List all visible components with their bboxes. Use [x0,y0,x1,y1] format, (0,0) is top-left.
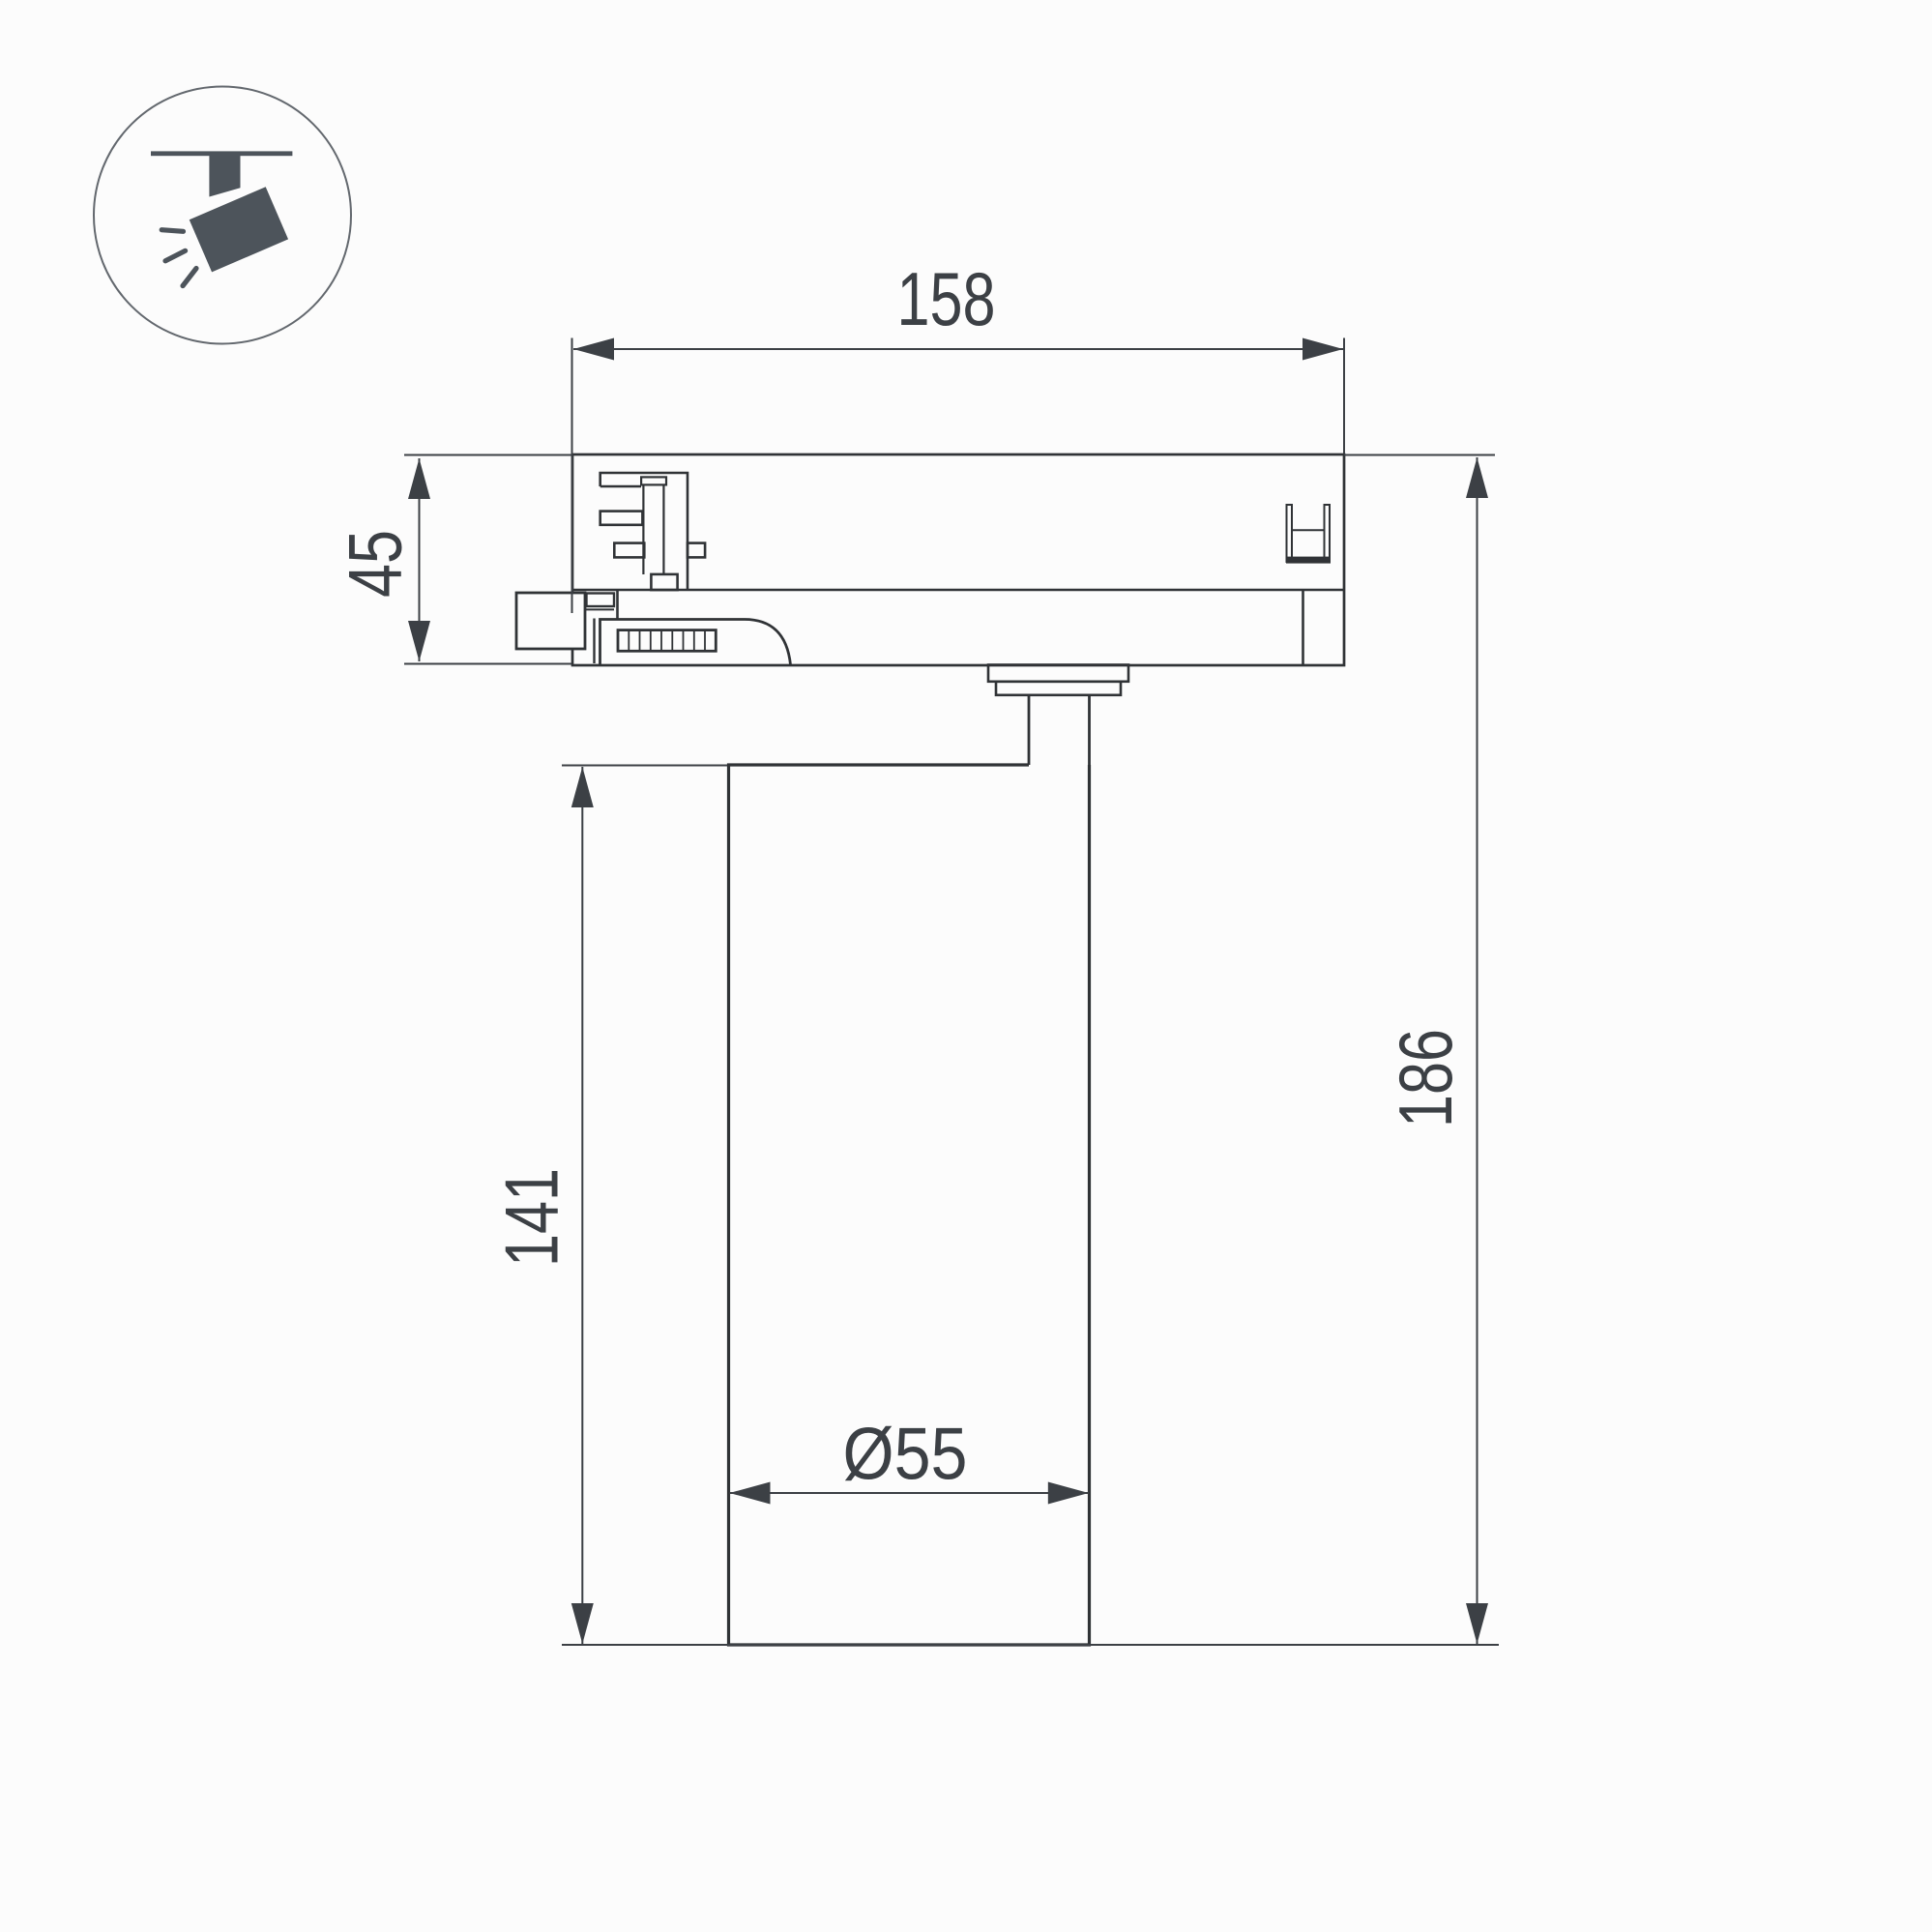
svg-text:158: 158 [897,256,996,341]
svg-text:141: 141 [489,1168,574,1267]
svg-text:Ø55: Ø55 [843,1414,968,1496]
svg-text:186: 186 [1383,1029,1468,1127]
svg-text:45: 45 [333,530,418,598]
